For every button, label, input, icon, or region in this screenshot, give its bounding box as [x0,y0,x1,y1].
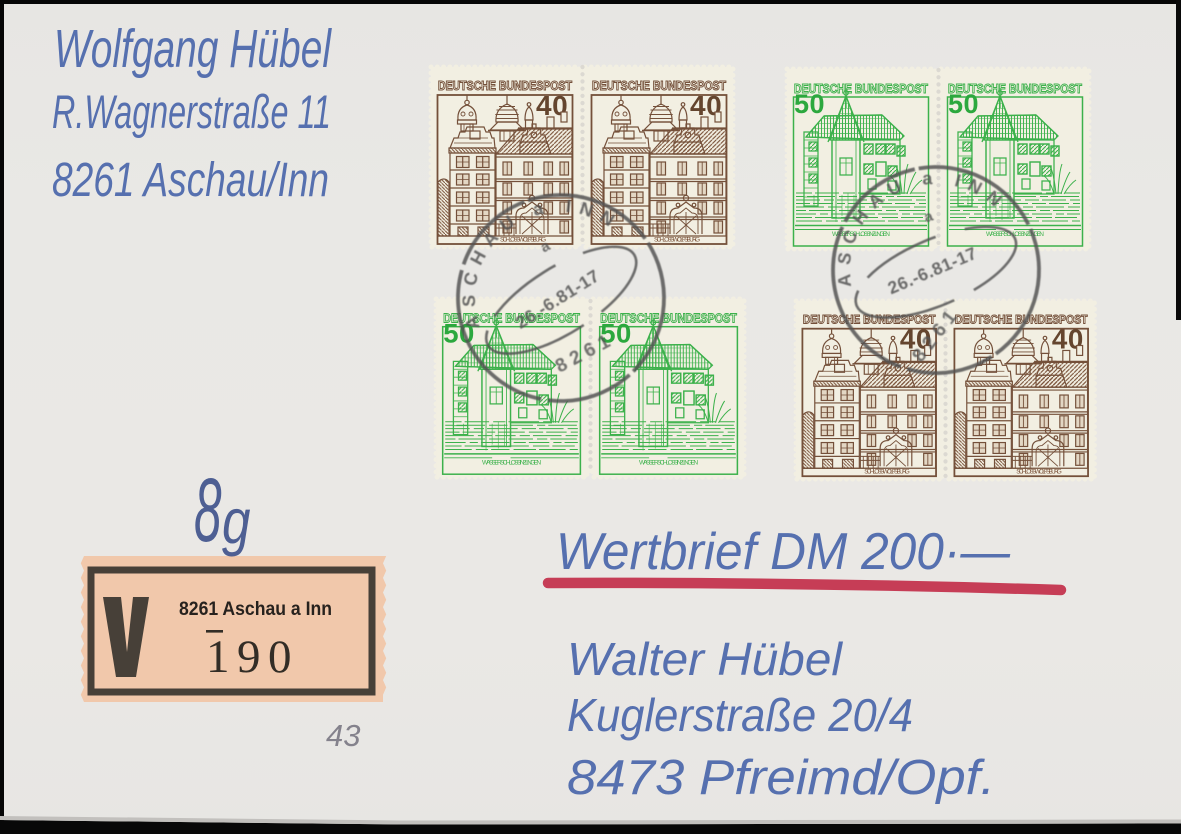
svg-text:R.Wagnerstraße 11: R.Wagnerstraße 11 [52,85,331,138]
svg-text:8261 Aschau a Inn: 8261 Aschau a Inn [179,598,332,620]
svg-text:8473 Pfreimd/Opf.: 8473 Pfreimd/Opf. [567,751,995,805]
svg-text:g: g [222,487,250,558]
svg-text:8: 8 [194,460,222,560]
svg-text:Wertbrief DM 200·—: Wertbrief DM 200·— [556,523,1011,581]
svg-text:Walter Hübel: Walter Hübel [567,633,844,685]
svg-text:43: 43 [326,718,360,753]
svg-text:Kuglerstraße 20/4: Kuglerstraße 20/4 [567,689,913,741]
svg-text:8261 Aschau/Inn: 8261 Aschau/Inn [52,154,329,207]
svg-text:190: 190 [206,631,299,683]
svg-text:Wolfgang Hübel: Wolfgang Hübel [54,19,332,79]
